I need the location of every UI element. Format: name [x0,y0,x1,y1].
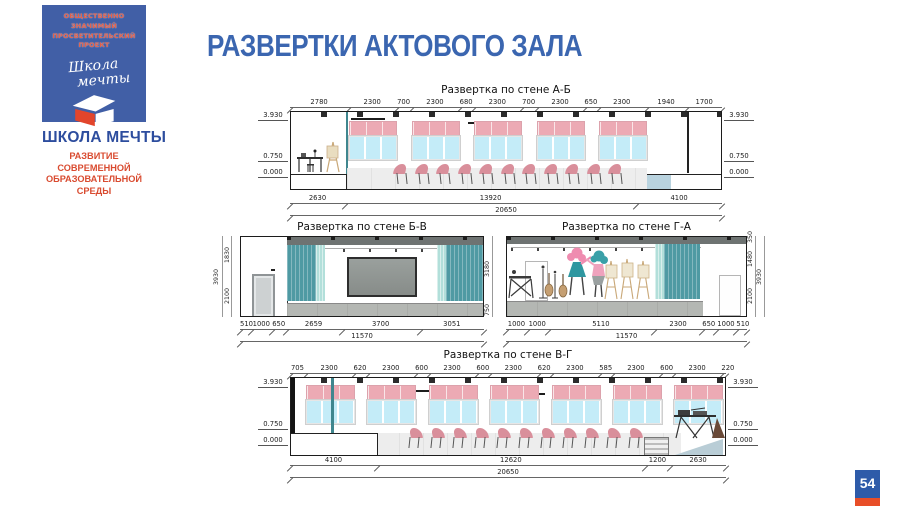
stage-curtain [664,244,700,299]
elevation-ab-top-dims: 2780 2300 700 2300 680 2300 700 2300 650… [290,96,722,108]
dim-total: 11570 [240,333,484,341]
window [537,121,585,160]
elevation-vg-total-dim: 20650 [290,466,726,478]
window [349,121,397,160]
chair [545,164,559,185]
elevation-ga-bottom-dims: 1000 1000 5110 2300 650 1000 510 [506,318,747,330]
dim: 620 [538,365,551,373]
chair [566,164,580,185]
stage-platform [507,301,703,317]
door-sign [271,269,275,271]
logo-box: ОБЩЕСТВЕННО ЗНАЧИМЫЙ ПРОСВЕТИТЕЛЬСКИЙ ПР… [42,5,146,122]
window [474,121,522,160]
left-platform [291,433,378,456]
dim: 1000 [527,321,548,329]
desk-scene [295,140,347,174]
dim: 700 [521,99,536,107]
window-valance [490,385,539,400]
elevation-ab-bottom-dims: 2630 13920 4100 [290,192,722,204]
left-platform [291,174,347,190]
chair [562,428,576,449]
stage-curtain-left [287,245,316,301]
stage-curtain-left-inner [316,245,325,301]
stage-curtain-right [446,245,483,301]
dim: 510 [240,321,251,329]
dim-vertical: 350 [747,236,756,243]
dim: 600 [415,365,428,373]
easel-icon [327,142,339,172]
chair [452,428,466,449]
dim: 650 [584,99,598,107]
elevation-ga-total-dim: 11570 [506,330,747,342]
dim: 2300 [489,365,538,373]
dim: 2300 [598,99,646,107]
stage-scene [507,243,657,303]
window-valance [674,385,723,400]
dim: 680 [459,99,473,107]
elevation-bv: Развертка по стене Б-В 3930 1830 2100 31… [240,221,484,351]
level-mark: 3.930 [258,378,288,388]
dim: 1700 [686,99,722,107]
window [613,385,662,424]
dim: 3700 [342,321,420,329]
chair-row [394,164,623,185]
window [490,385,539,424]
window-valance [429,385,478,400]
elevation-bv-drawing [240,236,484,317]
window-glass [367,400,416,424]
level-mark: 3.930 [728,378,758,388]
window [412,121,460,160]
window-glass [552,400,601,424]
elevation-ga-drawing [506,236,747,317]
elevation-vg-top-dims: 705 2300 620 2300 600 2300 600 2300 620 … [290,362,726,374]
window [367,385,416,424]
beam [351,118,385,120]
logo-badge-line1: ОБЩЕСТВЕННО ЗНАЧИМЫЙ [42,12,146,32]
elevation-bv-total-dim: 11570 [240,330,484,342]
chair [437,164,451,185]
chair [408,428,422,449]
dim: 2300 [473,99,521,107]
school-building-icon [42,91,146,131]
case-icon [712,418,725,438]
page-title: РАЗВЕРТКИ АКТОВОГО ЗАЛА [207,28,582,64]
logo-tagline-line1: РАЗВИТИЕ СОВРЕМЕННОЙ [42,151,146,174]
elevation-ab: Развертка по стене А-Б 2780 2300 700 230… [290,84,722,224]
chair [588,164,602,185]
dim: 650 [272,321,286,329]
dim-line [222,236,223,317]
dim: 705 [290,365,305,373]
guitar-icon [545,273,567,297]
level-mark: 0.000 [728,436,758,446]
chair-row [408,428,642,449]
chair [628,428,642,449]
dim: 5110 [548,321,654,329]
dim: 2300 [348,99,396,107]
chair [540,428,554,449]
level-mark: 0.000 [258,168,288,178]
dim: 4100 [636,195,722,203]
window [552,385,601,424]
window-glass [412,136,460,160]
dim-vertical: 1830 [224,236,233,274]
chair [584,428,598,449]
elevation-ga-title: Развертка по стене Г-А [506,221,747,233]
glass-partition [331,378,334,434]
slide: ОБЩЕСТВЕННО ЗНАЧИМЫЙ ПРОСВЕТИТЕЛЬСКИЙ ПР… [0,0,900,506]
level-mark: 0.750 [258,420,288,430]
logo-script: Школа мечты [41,55,147,93]
dim: 2300 [551,365,600,373]
dim: 1000 [716,321,737,329]
logo: ОБЩЕСТВЕННО ЗНАЧИМЫЙ ПРОСВЕТИТЕЛЬСКИЙ ПР… [42,5,146,197]
window-valance [474,121,522,136]
window-glass [490,400,539,424]
sound-desk [671,402,726,440]
dim-total: 20650 [290,469,726,477]
window-glass [474,136,522,160]
window-valance [613,385,662,400]
dim: 2780 [290,99,348,107]
dim: 2300 [367,365,416,373]
dim-vertical: 3930 [213,236,222,317]
dim: 1200 [645,457,670,465]
dim-vertical: 3180 [484,236,493,302]
desk-icon [297,150,323,173]
dim-vertical: 3930 [756,236,765,317]
window-glass [349,136,397,160]
wall-column [291,378,295,434]
door [252,274,275,317]
dim: 2300 [673,365,722,373]
ceiling-fixtures [507,237,746,240]
stage-curtain-right-inner [437,245,446,301]
dim-vertical: 750 [484,302,493,317]
level-mark: 3.930 [258,111,288,121]
chair [416,164,430,185]
window-valance [412,121,460,136]
dim: 600 [660,365,673,373]
dim: 700 [396,99,411,107]
window-valance [537,121,585,136]
dim: 4100 [290,457,377,465]
dim-total: 20650 [290,207,722,215]
dim: 2300 [654,321,702,329]
step-block [647,175,671,190]
ceiling-fixtures [287,237,483,240]
dim-vertical: 2100 [224,274,233,317]
elevation-ga: Развертка по стене Г-А [506,221,747,351]
chair [502,164,516,185]
level-mark: 0.000 [724,168,754,178]
elevation-bv-bottom-dims: 510 1000 650 2659 3700 3051 [240,318,484,330]
dim: 1940 [646,99,687,107]
dim: 2300 [428,365,477,373]
wall-divider [687,112,689,173]
logo-script-word2: мечты [51,68,156,92]
dim-vertical: 1480 [747,243,756,274]
elevation-ab-drawing [290,111,722,190]
elevation-ab-title: Развертка по стене А-Б [290,84,722,96]
easel-icon [605,259,649,299]
level-mark: 0.750 [724,152,754,162]
ceiling-fixtures [291,112,721,117]
chair [606,428,620,449]
dim: 12620 [377,457,645,465]
chair [459,164,473,185]
window-glass [537,136,585,160]
dim: 220 [721,365,726,373]
dancers-mural [567,248,608,298]
ceiling-fixtures [291,378,725,383]
window [599,121,647,160]
keyboard-stand-icon [509,270,533,298]
level-mark: 0.750 [728,420,758,430]
dim-vertical: 2100 [747,274,756,317]
dim: 2300 [536,99,584,107]
chair [496,428,510,449]
elevation-vg: Развертка по стене В-Г 705 2300 620 2300… [290,349,726,489]
stage-platform [287,303,483,317]
elevation-bv-title: Развертка по стене Б-В [240,221,484,233]
dim: 510 [736,321,747,329]
window-valance [367,385,416,400]
window-valance [599,121,647,136]
window-valance [552,385,601,400]
dim: 3051 [420,321,484,329]
chair [609,164,623,185]
dim: 620 [353,365,366,373]
dim: 2300 [305,365,354,373]
dim: 600 [476,365,489,373]
dim-total: 11570 [506,333,747,341]
projection-screen [347,257,417,297]
window-glass [599,136,647,160]
chair [518,428,532,449]
chair [394,164,408,185]
level-mark: 0.000 [258,436,288,446]
window [429,385,478,424]
level-mark: 0.750 [258,152,288,162]
logo-badge: ОБЩЕСТВЕННО ЗНАЧИМЫЙ ПРОСВЕТИТЕЛЬСКИЙ ПР… [42,12,146,51]
dim: 650 [702,321,716,329]
chair [474,428,488,449]
elevation-vg-title: Развертка по стене В-Г [290,349,726,361]
chair [430,428,444,449]
dim: 2630 [290,195,345,203]
logo-tagline-line2: ОБРАЗОВАТЕЛЬНОЙ СРЕДЫ [42,174,146,197]
elevation-ab-total-dim: 20650 [290,204,722,216]
dim: 585 [599,365,611,373]
page-badge-stripe [855,498,880,506]
school-building-icon-svg [65,91,123,127]
door-outline [719,275,741,316]
chair [523,164,537,185]
chair [480,164,494,185]
logo-badge-line2: ПРОСВЕТИТЕЛЬСКИЙ ПРОЕКТ [42,32,146,52]
dim: 2300 [411,99,459,107]
dim: 13920 [345,195,636,203]
dim: 2300 [612,365,661,373]
window-glass [613,400,662,424]
dim: 2659 [286,321,342,329]
dim: 2630 [670,457,726,465]
page-number: 54 [855,475,880,491]
elevation-vg-drawing [290,377,726,456]
mixer-table-icon [674,408,716,438]
dim: 1000 [506,321,527,329]
level-mark: 3.930 [724,111,754,121]
window-glass [429,400,478,424]
elevation-vg-bottom-dims: 4100 12620 1200 2630 [290,454,726,466]
page-number-badge: 54 [855,470,880,506]
dim: 1000 [251,321,272,329]
window-valance [349,121,397,136]
logo-name: ШКОЛА МЕЧТЫ [42,129,146,147]
logo-tagline: РАЗВИТИЕ СОВРЕМЕННОЙ ОБРАЗОВАТЕЛЬНОЙ СРЕ… [42,151,146,197]
